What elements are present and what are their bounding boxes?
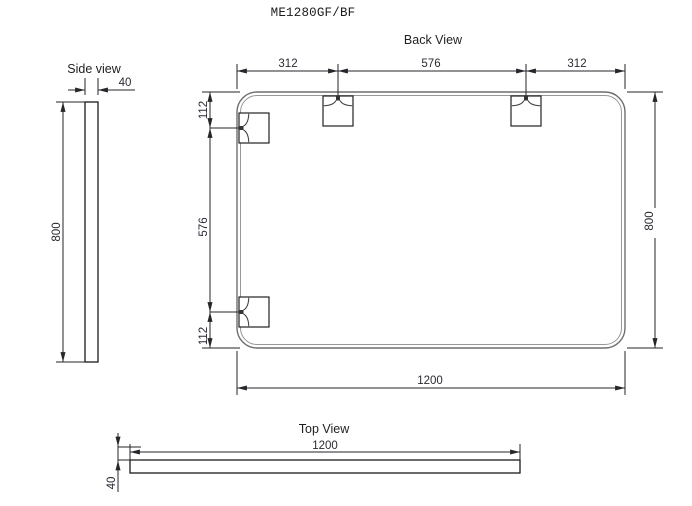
back-view-top-mid-value: 576 [421,58,440,70]
back-view-left-dimension: 112 576 112 [198,92,240,348]
side-view-height-dimension: 800 [51,102,85,362]
hanger-bracket-left-bottom [239,297,269,327]
hanger-bracket-top-right [511,96,541,126]
top-view-thickness-value: 40 [106,477,118,490]
hanger-bracket-left-top [239,113,269,143]
top-view-length-value: 1200 [312,440,338,452]
top-view-label: Top View [299,422,350,436]
hanger-bracket-top-left [323,96,353,126]
top-view: Top View 1200 40 [106,422,520,492]
back-view-right-value: 800 [644,211,656,230]
back-view-left-mid-value: 576 [198,217,210,236]
back-view-right-dimension: 800 [627,92,663,348]
drawing-title: ME1280GF/BF [271,6,356,20]
back-view-bottom-dimension: 1200 [237,351,625,395]
mirror-outline-inner [241,96,622,345]
top-view-thickness-dimension: 40 [106,433,141,492]
back-view-left-bottom-value: 112 [198,327,210,345]
back-view-label: Back View [404,33,463,47]
keyhole-notch [239,126,244,130]
back-view-top-right-value: 312 [567,58,586,70]
top-view-profile [130,460,520,473]
mirror-outline-outer [237,92,625,348]
back-view-bottom-value: 1200 [417,375,443,387]
side-view-label: Side view [67,62,121,76]
side-view-width-dimension: 40 [68,77,135,95]
back-view-left-top-value: 112 [198,101,210,119]
keyhole-notch [239,310,244,314]
side-view-profile [85,102,98,362]
back-view-top-dimension: 312 576 312 [237,58,625,100]
side-view: Side view 40 800 [51,62,135,362]
side-view-height-value: 800 [51,222,63,241]
back-view: Back View 312 576 312 [198,33,663,395]
top-view-length-dimension: 1200 [130,440,520,460]
side-view-width-value: 40 [119,77,132,89]
keyhole-notch [336,96,340,101]
back-view-top-left-value: 312 [278,58,297,70]
technical-drawing-page: ME1280GF/BF Side view 40 800 Back View [0,0,692,506]
keyhole-notch [524,96,528,101]
drawing-canvas: ME1280GF/BF Side view 40 800 Back View [0,0,692,506]
